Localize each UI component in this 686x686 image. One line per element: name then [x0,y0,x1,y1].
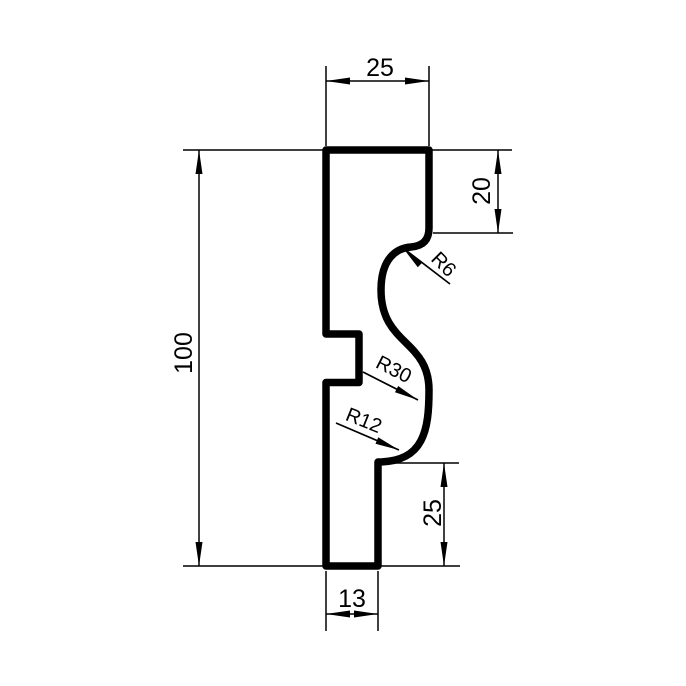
arrow-upper-right-top [495,150,502,174]
arrow-lower-right-bottom [441,542,448,566]
arrow-overall-height-top [196,150,203,174]
label-overall-height: 100 [170,332,198,374]
arrow-upper-right-bottom [495,209,502,233]
label-radius-r6: R6 [426,248,460,282]
dimension-lines [199,81,498,614]
label-radius-r12: R12 [342,404,384,438]
label-upper-right-height: 20 [468,177,496,205]
profile-drawing: 25 20 100 25 13 R6 R30 R12 [0,0,686,686]
label-lower-right-height: 25 [419,499,447,527]
arrowheads [196,78,502,618]
arrow-r30 [395,386,418,400]
label-radius-r30: R30 [372,352,415,388]
label-bottom-width: 13 [338,585,366,613]
arrow-overall-height-bottom [196,542,203,566]
label-top-width: 25 [366,54,394,82]
arrow-top-width-right [405,78,429,85]
arrow-r12 [376,437,400,450]
profile-outline [326,150,429,566]
technical-drawing-canvas: 25 20 100 25 13 R6 R30 R12 [0,0,686,686]
arrow-top-width-left [326,78,350,85]
arrow-lower-right-top [441,463,448,487]
